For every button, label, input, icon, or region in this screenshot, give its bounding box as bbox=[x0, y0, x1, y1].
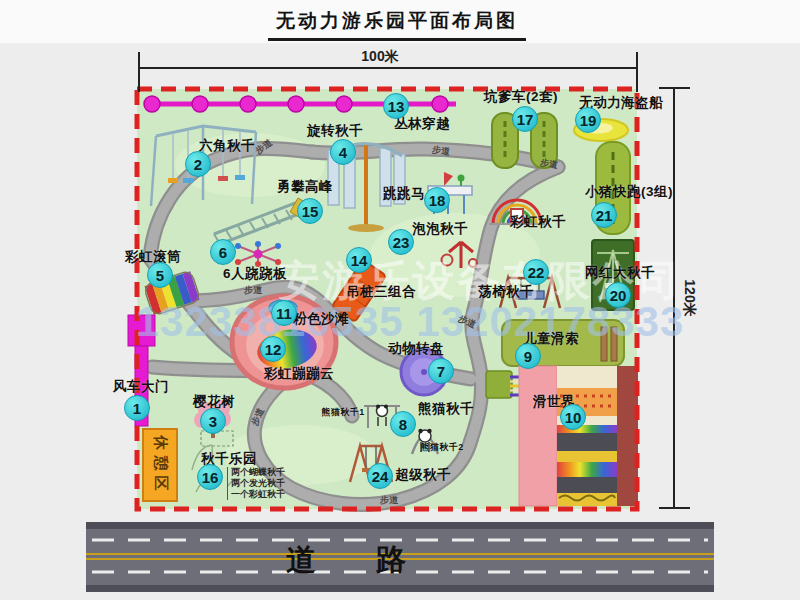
swing-note-2: 两个发光秋千 bbox=[227, 478, 285, 489]
plan-poster: 无动力游乐园平面布局图 100米 120米 休憩区 安游乐设备有限公司 1323… bbox=[0, 0, 800, 600]
slide-world-icon bbox=[519, 366, 638, 506]
animal-turntable-icon bbox=[401, 349, 447, 395]
pirate-ship-icon bbox=[574, 119, 628, 141]
height-dimension-label: 120米 bbox=[680, 279, 698, 316]
swing-note-1: 两个蝴蝶秋千 bbox=[227, 467, 285, 478]
rest-area-box: 休憩区 bbox=[142, 428, 178, 502]
road-label: 道 路 bbox=[286, 540, 432, 581]
watermark-phone: 13233816535 13202178333 bbox=[136, 298, 685, 346]
swing-notes: 两个蝴蝶秋千两个发光秋千一个彩虹秋千 bbox=[227, 467, 285, 500]
swing-note-3: 一个彩虹秋千 bbox=[227, 489, 285, 500]
page-title: 无动力游乐园平面布局图 bbox=[268, 8, 526, 41]
width-dimension-label: 100米 bbox=[361, 48, 398, 66]
pig-run-track-icon bbox=[596, 142, 630, 234]
rest-area-label: 休憩区 bbox=[151, 435, 170, 495]
